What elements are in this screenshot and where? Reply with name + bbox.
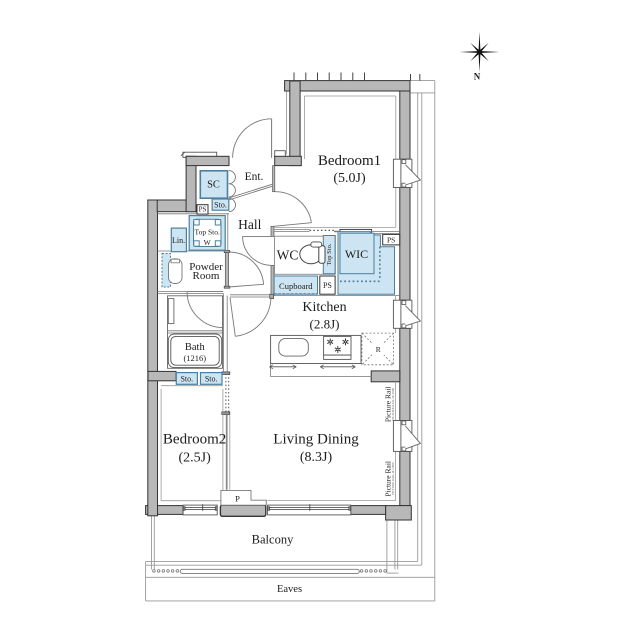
svg-text:Sto.: Sto. [180,375,193,384]
svg-text:(2.5J): (2.5J) [178,450,211,465]
svg-text:N: N [474,72,481,82]
svg-text:P: P [235,493,240,503]
svg-text:Top Sto.: Top Sto. [326,243,333,265]
svg-text:WC: WC [277,247,299,262]
svg-text:(5.0J): (5.0J) [333,171,366,186]
svg-text:WIC: WIC [345,247,368,261]
svg-text:(1216): (1216) [183,353,206,363]
svg-text:PICTURE RAIL H=1800: PICTURE RAIL H=1800 [391,462,395,495]
svg-text:Sto.: Sto. [214,201,227,210]
svg-text:Hall: Hall [238,217,261,232]
svg-text:Ent.: Ent. [245,171,264,183]
svg-text:Bath: Bath [185,342,206,353]
svg-text:PS: PS [323,281,332,290]
svg-text:(2.8J): (2.8J) [310,317,340,332]
svg-text:Kitchen: Kitchen [302,300,346,315]
svg-text:Lin.: Lin. [172,236,185,245]
svg-text:SC: SC [207,180,220,191]
svg-text:PS: PS [199,206,207,214]
svg-text:(8.3J): (8.3J) [300,450,333,465]
svg-text:Cupboard: Cupboard [279,281,313,291]
svg-text:Eaves: Eaves [277,584,302,595]
svg-text:Sto.: Sto. [205,375,218,384]
svg-text:PS: PS [387,236,395,245]
svg-text:Living Dining: Living Dining [273,431,359,447]
svg-text:Room: Room [193,270,220,282]
svg-text:Bedroom2: Bedroom2 [163,432,226,448]
svg-text:Bedroom1: Bedroom1 [318,153,381,169]
svg-text:Balcony: Balcony [252,533,294,547]
svg-text:W: W [204,238,212,247]
svg-text:PICTURE RAIL H=1800: PICTURE RAIL H=1800 [391,388,395,421]
svg-text:Top Sto.: Top Sto. [195,228,220,237]
svg-text:R: R [376,345,381,354]
